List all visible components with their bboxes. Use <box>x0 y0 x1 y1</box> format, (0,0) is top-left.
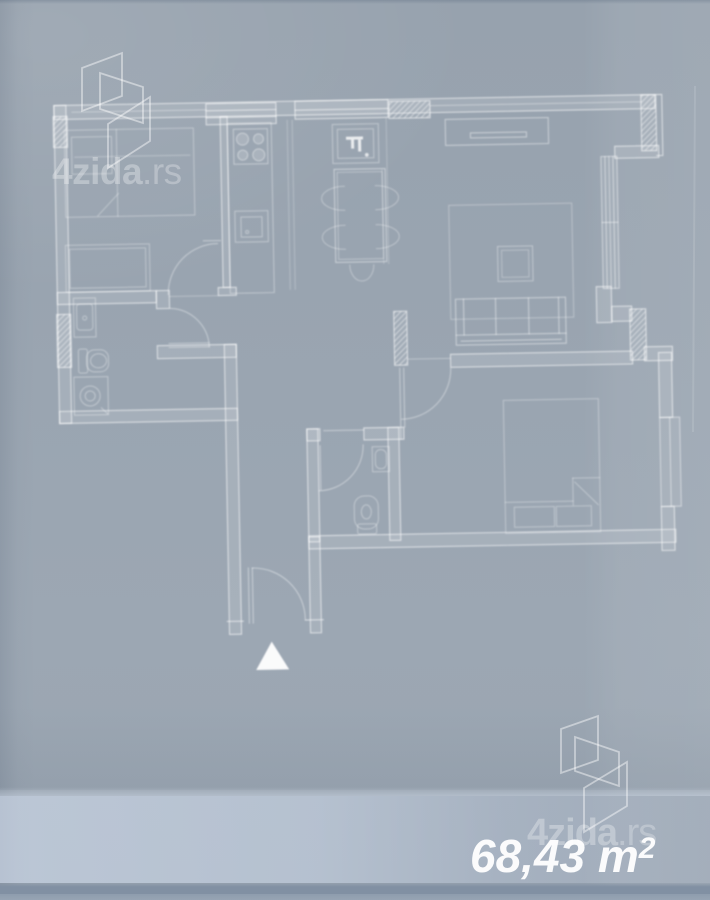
svg-text:68,43 m2: 68,43 m2 <box>470 830 656 882</box>
svg-text:4zida.rs: 4zida.rs <box>52 151 182 192</box>
